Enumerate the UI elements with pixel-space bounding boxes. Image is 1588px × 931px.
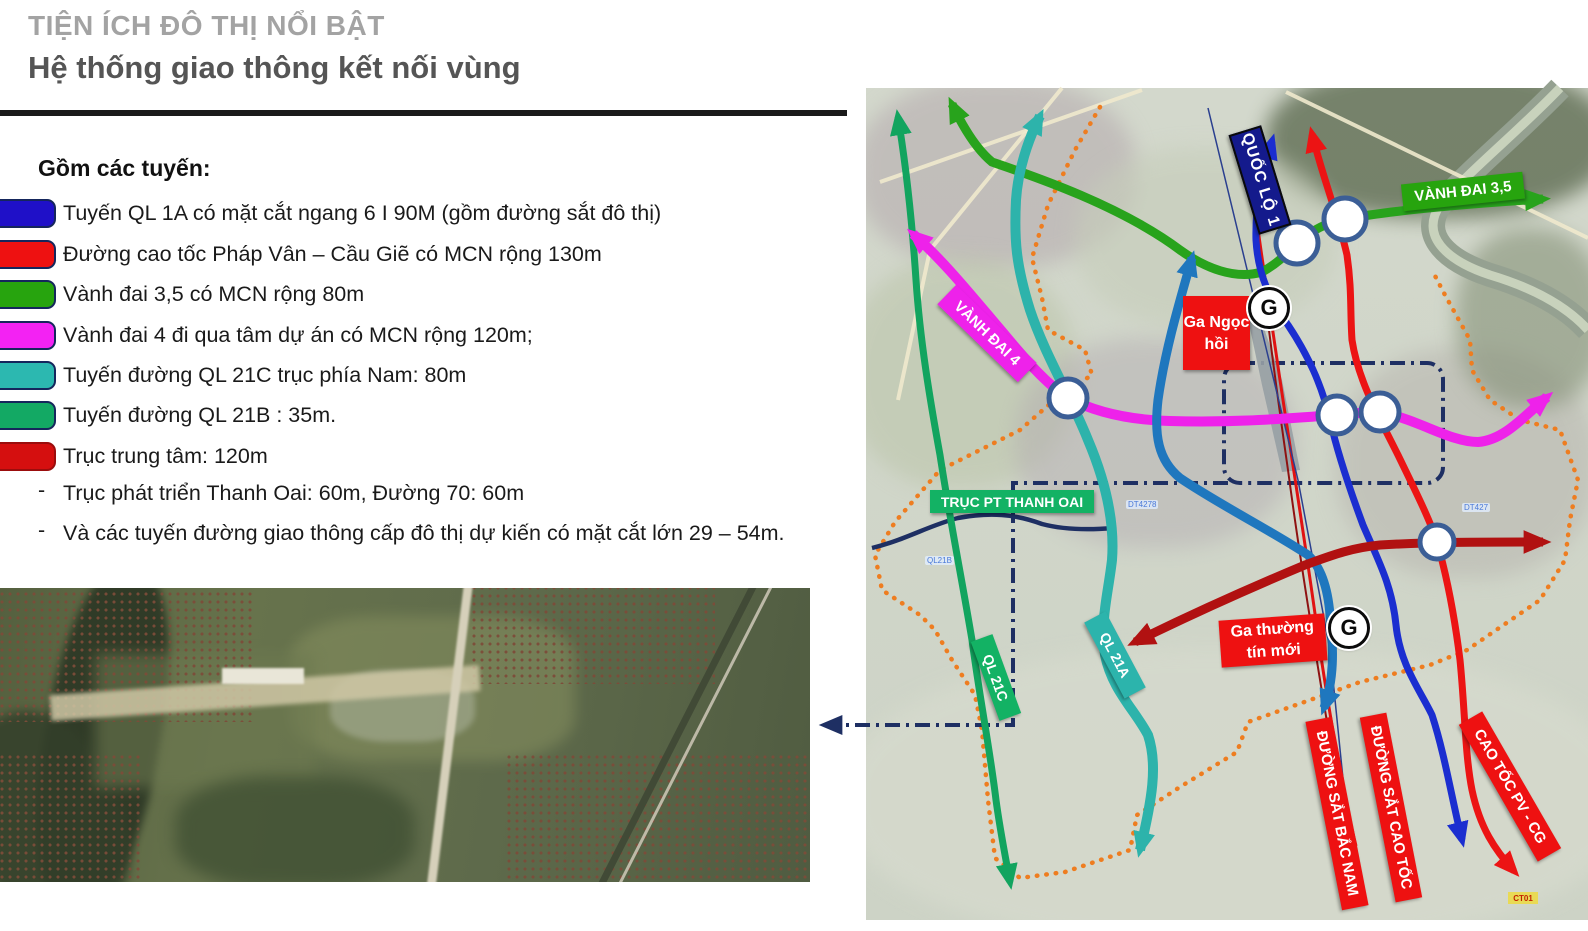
station-g-icon: G (1328, 607, 1370, 649)
interchange-node (1276, 222, 1318, 264)
map-overlay (0, 0, 1588, 931)
base-road-label: DT427 (1462, 503, 1490, 512)
label-ga-thuong-tin-moi: Ga thường tín mới (1218, 613, 1327, 667)
base-road-label: DT4278 (1126, 500, 1158, 509)
label-truc-pt-thanh-oai: TRỤC PT THANH OAI (930, 490, 1094, 513)
label-ga-ngoc-hoi: Ga Ngọc hồi (1183, 296, 1250, 370)
interchange-node (1318, 396, 1356, 434)
interchange-node (1049, 379, 1087, 417)
station-g-icon: G (1248, 287, 1290, 329)
interchange-node (1324, 198, 1366, 240)
slide: TIỆN ÍCH ĐÔ THỊ NỔI BẬT Hệ thống giao th… (0, 0, 1588, 931)
base-road-label: QL21B (925, 556, 954, 565)
route-truc-thanh-oai (872, 515, 1113, 548)
interchange-node (1361, 393, 1399, 431)
interchange-node (1420, 525, 1454, 559)
label-ct01: CT01 (1508, 892, 1538, 904)
